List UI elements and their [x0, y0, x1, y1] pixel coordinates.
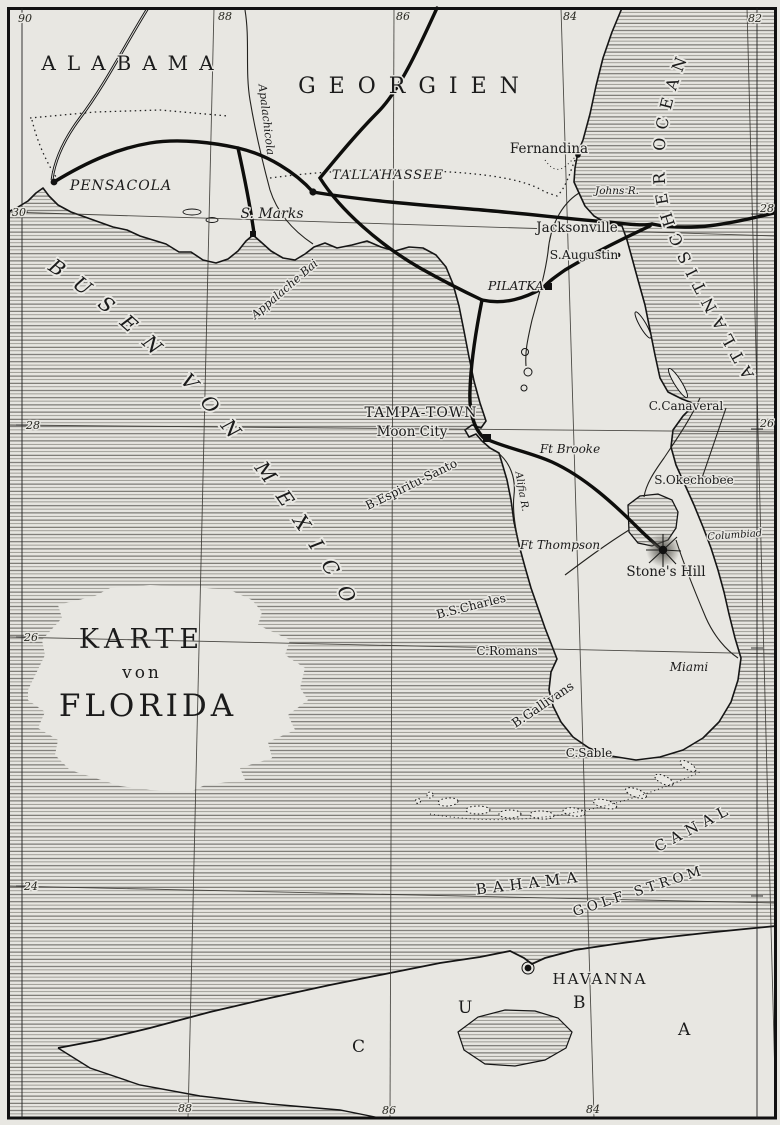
lat-26: 26 [23, 631, 38, 644]
marker-st-marks [250, 231, 256, 237]
marker-tallahassee [309, 188, 316, 195]
label-cape-canaveral: C.Canaveral [649, 399, 724, 413]
label-cape-sable: C.Sable [566, 746, 613, 760]
title-karte: KARTE [79, 624, 205, 655]
label-okeechobee: S.Okechobee [654, 473, 733, 487]
lon-82: 82 [748, 12, 762, 25]
lat-24: 24 [23, 880, 38, 893]
lat-30: 30 [12, 206, 26, 219]
label-johns-river: Johns R. [593, 185, 639, 197]
marker-pensacola [51, 179, 58, 186]
label-jacksonville: Jacksonville [534, 220, 618, 236]
lon-88-bottom: 88 [178, 1102, 192, 1115]
lon-90: 90 [18, 12, 32, 25]
lon-88: 88 [218, 10, 232, 23]
marker-tampa [483, 434, 491, 442]
lat-28: 28 [25, 419, 40, 432]
label-tallahassee: TALLAHASSEE [332, 168, 444, 183]
label-alabama: ALABAMA [40, 51, 224, 75]
marker-havanna [525, 965, 532, 972]
lon-86: 86 [396, 10, 410, 23]
title-florida: FLORIDA [59, 688, 237, 724]
label-st-augustin: S.Augustin [550, 247, 619, 262]
label-miami: Miami [669, 660, 709, 674]
label-cuba-b: B [573, 993, 586, 1013]
lon-86-bottom: 86 [382, 1104, 396, 1117]
label-cuba-c: C [352, 1037, 365, 1057]
label-pensacola: PENSACOLA [69, 178, 172, 194]
title-von: von [121, 663, 162, 683]
label-moon-city: Moon City [377, 424, 448, 440]
florida-map-svg: 90 88 86 84 82 88 86 84 30 28 26 24 28 2… [0, 0, 780, 1125]
label-fernandina: Fernandina [510, 141, 588, 157]
label-havanna: HAVANNA [553, 970, 648, 988]
map-canvas: 90 88 86 84 82 88 86 84 30 28 26 24 28 2… [0, 0, 780, 1125]
label-cape-romans: C.Romans [476, 644, 537, 658]
label-stones-hill: Stone's Hill [626, 564, 705, 580]
lon-84: 84 [563, 10, 577, 23]
marker-pilatka [545, 283, 552, 290]
label-cuba-u: U [458, 998, 472, 1018]
label-cuba-a: A [677, 1020, 691, 1040]
label-fort-brooke: Ft Brooke [539, 442, 600, 456]
columbiad-site-dot [659, 546, 667, 554]
label-georgien: GEORGIEN [298, 74, 532, 99]
label-pilatka: PILATKA [487, 278, 544, 293]
lat-28-right: 28 [759, 202, 774, 215]
label-fort-thompson: Ft Thompson [519, 538, 600, 552]
lon-84-bottom: 84 [586, 1103, 600, 1116]
label-tampa-town: TAMPA-TOWN [365, 405, 478, 421]
label-st-marks: S. Marks [240, 206, 303, 222]
lat-26-right: 26 [759, 417, 774, 430]
